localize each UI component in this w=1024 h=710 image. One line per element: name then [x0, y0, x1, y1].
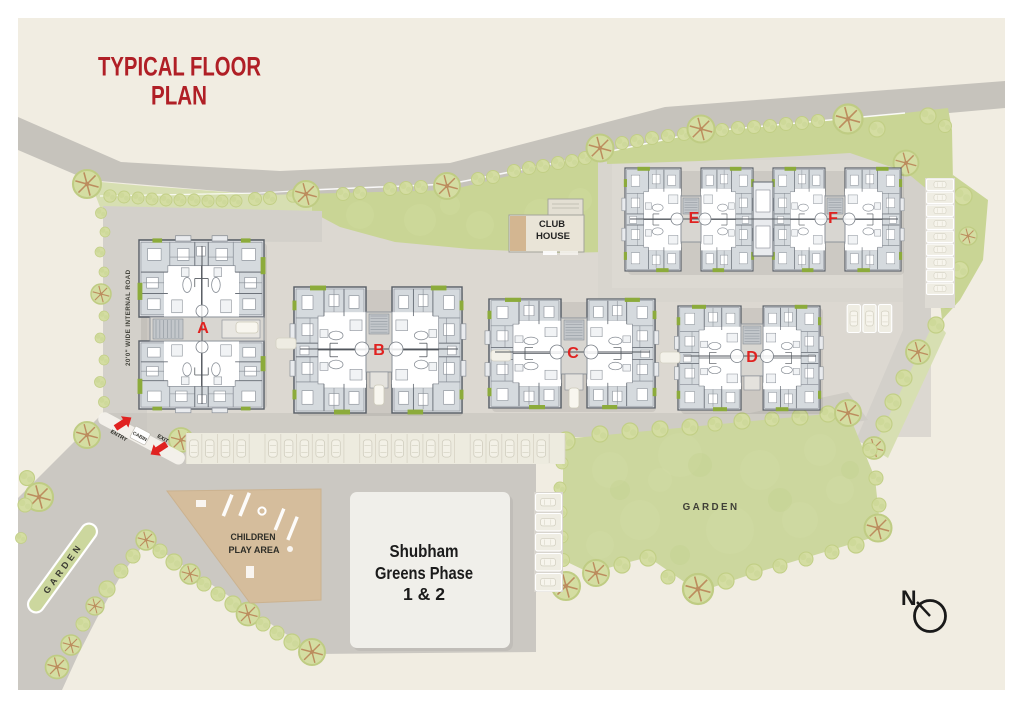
svg-text:E: E	[689, 210, 700, 227]
svg-text:C: C	[567, 345, 579, 362]
svg-text:GARDEN: GARDEN	[683, 502, 740, 513]
svg-text:N: N	[901, 586, 917, 610]
svg-text:B: B	[373, 342, 385, 359]
svg-text:CHILDREN: CHILDREN	[231, 532, 276, 543]
svg-text:D: D	[746, 349, 758, 366]
svg-text:Shubham: Shubham	[390, 541, 459, 561]
svg-text:TYPICAL FLOOR: TYPICAL FLOOR	[98, 52, 261, 82]
svg-text:HOUSE: HOUSE	[536, 231, 570, 241]
svg-text:CLUB: CLUB	[539, 219, 566, 229]
svg-text:PLAN: PLAN	[151, 81, 207, 111]
svg-text:1 & 2: 1 & 2	[403, 584, 445, 604]
svg-text:F: F	[828, 210, 838, 227]
svg-text:20'0" WIDE INTERNAL ROAD: 20'0" WIDE INTERNAL ROAD	[125, 269, 132, 366]
svg-text:PLAY AREA: PLAY AREA	[229, 545, 280, 556]
svg-text:A: A	[197, 320, 209, 337]
svg-text:Greens Phase: Greens Phase	[375, 563, 473, 583]
